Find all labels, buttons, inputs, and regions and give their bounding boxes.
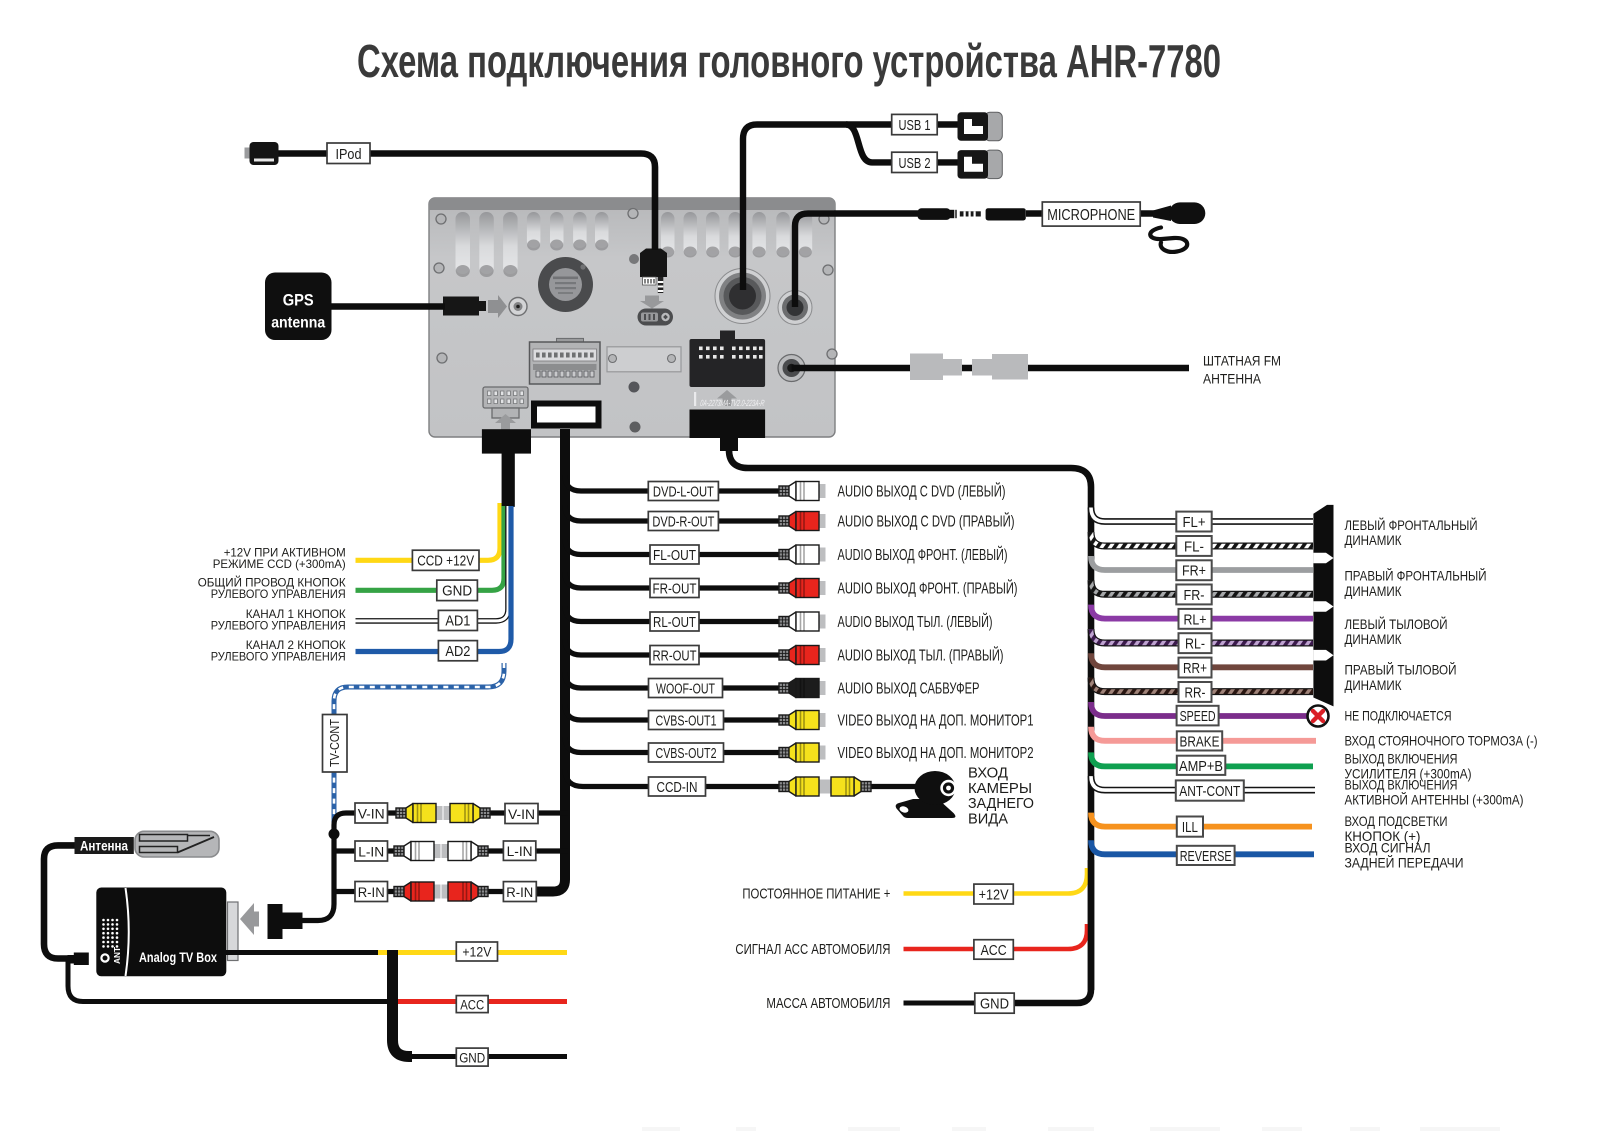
svg-text:ПОСТОЯННОЕ ПИТАНИЕ +: ПОСТОЯННОЕ ПИТАНИЕ + [742,886,890,903]
svg-text:RR-: RR- [1185,684,1206,701]
svg-text:ACC: ACC [460,997,484,1012]
svg-text:VIDEO ВЫХОД НА ДОП. МОНИТОР1: VIDEO ВЫХОД НА ДОП. МОНИТОР1 [838,713,1034,730]
svg-text:ВЫХОД ВКЛЮЧЕНИЯ: ВЫХОД ВКЛЮЧЕНИЯ [1345,750,1458,766]
svg-text:TV-CONT: TV-CONT [328,719,342,767]
svg-text:AUDIO ВЫХОД ФРОНТ. (ПРАВЫЙ): AUDIO ВЫХОД ФРОНТ. (ПРАВЫЙ) [838,580,1018,598]
svg-text:CVBS-OUT2: CVBS-OUT2 [656,746,717,762]
svg-text:ЛЕВЫЙ ФРОНТАЛЬНЫЙ: ЛЕВЫЙ ФРОНТАЛЬНЫЙ [1345,516,1478,533]
svg-text:DVD-R-OUT: DVD-R-OUT [652,515,714,531]
svg-text:ДИНАМИК: ДИНАМИК [1345,532,1403,548]
svg-text:ВИДА: ВИДА [968,810,1008,827]
svg-text:FR-OUT: FR-OUT [653,582,697,598]
svg-text:ДИНАМИК: ДИНАМИК [1345,631,1403,647]
svg-text:IPod: IPod [336,147,362,163]
svg-text:АКТИВНОЙ АНТЕННЫ (+300mA): АКТИВНОЙ АНТЕННЫ (+300mA) [1345,791,1524,808]
svg-text:DVD-L-OUT: DVD-L-OUT [653,485,714,501]
svg-text:ПРАВЫЙ ТЫЛОВОЙ: ПРАВЫЙ ТЫЛОВОЙ [1345,661,1457,678]
svg-text:СИГНАЛ АСС АВТОМОБИЛЯ: СИГНАЛ АСС АВТОМОБИЛЯ [735,941,890,958]
svg-text:L-IN: L-IN [358,843,384,859]
svg-text:V-IN: V-IN [358,805,385,821]
svg-text:ДИНАМИК: ДИНАМИК [1345,677,1403,693]
svg-text:+12V: +12V [462,945,491,960]
svg-text:RL+: RL+ [1184,611,1207,628]
svg-text:ВХОД СТОЯНОЧНОГО ТОРМОЗА (-): ВХОД СТОЯНОЧНОГО ТОРМОЗА (-) [1345,732,1538,748]
svg-text:WOOF-OUT: WOOF-OUT [656,682,715,698]
svg-text:RL-: RL- [1185,636,1205,653]
svg-text:FL-: FL- [1184,538,1204,555]
svg-text:ILL: ILL [1182,819,1198,836]
svg-text:ДИНАМИК: ДИНАМИК [1345,583,1403,599]
svg-text:BRAKE: BRAKE [1180,733,1220,750]
svg-text:ВХОД СИГНАЛ: ВХОД СИГНАЛ [1345,840,1431,856]
svg-text:ЛЕВЫЙ ТЫЛОВОЙ: ЛЕВЫЙ ТЫЛОВОЙ [1345,615,1448,632]
svg-text:FL-OUT: FL-OUT [653,548,696,564]
svg-text:AD1: AD1 [445,614,470,630]
svg-text:R-IN: R-IN [358,884,385,900]
svg-text:AUDIO ВЫХОД САБВУФЕР: AUDIO ВЫХОД САБВУФЕР [838,681,980,698]
svg-text:RR-OUT: RR-OUT [653,649,697,665]
svg-text:GND: GND [442,584,472,600]
svg-text:CCD +12V: CCD +12V [417,554,474,570]
svg-text:L-IN: L-IN [507,843,533,859]
svg-text:Analog TV Box: Analog TV Box [139,949,217,965]
svg-text:MICROPHONE: MICROPHONE [1047,207,1135,224]
svg-text:AD2: AD2 [445,644,470,660]
svg-text:АНТЕННА: АНТЕННА [1203,371,1262,387]
svg-text:ANT: ANT [113,947,122,964]
svg-text:RL-OUT: RL-OUT [653,615,696,631]
svg-text:ANT-CONT: ANT-CONT [1179,783,1240,800]
svg-text:SPEED: SPEED [1180,708,1216,725]
svg-text:РЕЖИМЕ CCD (+300mA): РЕЖИМЕ CCD (+300mA) [213,557,346,571]
svg-text:ШТАТНАЯ FM: ШТАТНАЯ FM [1203,353,1281,369]
svg-text:USB 1: USB 1 [899,118,931,134]
svg-text:GND: GND [980,997,1009,1013]
svg-text:FR-: FR- [1184,587,1205,604]
svg-text:RR+: RR+ [1183,660,1207,677]
svg-text:GPS: GPS [283,291,314,310]
svg-text:РУЛЕВОГО УПРАВЛЕНИЯ: РУЛЕВОГО УПРАВЛЕНИЯ [211,587,346,601]
svg-text:+12V: +12V [979,887,1009,903]
svg-text:AUDIO ВЫХОД С DVD (ЛЕВЫЙ): AUDIO ВЫХОД С DVD (ЛЕВЫЙ) [838,483,1006,501]
svg-text:ВЫХОД ВКЛЮЧЕНИЯ: ВЫХОД ВКЛЮЧЕНИЯ [1345,776,1458,792]
svg-text:REVERSE: REVERSE [1180,848,1232,865]
svg-text:R-IN: R-IN [506,884,533,900]
svg-text:FL+: FL+ [1183,514,1206,531]
svg-text:CCD-IN: CCD-IN [657,780,698,796]
svg-text:FR+: FR+ [1182,563,1206,580]
svg-text:VIDEO ВЫХОД НА ДОП. МОНИТОР2: VIDEO ВЫХОД НА ДОП. МОНИТОР2 [838,745,1034,762]
svg-text:ПРАВЫЙ ФРОНТАЛЬНЫЙ: ПРАВЫЙ ФРОНТАЛЬНЫЙ [1345,567,1487,584]
svg-text:GND: GND [459,1050,485,1065]
svg-text:ВХОД ПОДСВЕТКИ: ВХОД ПОДСВЕТКИ [1345,813,1448,829]
svg-text:CVBS-OUT1: CVBS-OUT1 [656,714,717,730]
svg-text:РУЛЕВОГО УПРАВЛЕНИЯ: РУЛЕВОГО УПРАВЛЕНИЯ [211,650,346,664]
svg-text:0A-2273MA-TV2.0-223A-R: 0A-2273MA-TV2.0-223A-R [700,398,766,408]
svg-text:V-IN: V-IN [508,806,535,822]
svg-text:ACC: ACC [981,943,1007,959]
svg-text:Схема подключения головного ус: Схема подключения головного устройства A… [357,35,1221,87]
svg-text:РУЛЕВОГО УПРАВЛЕНИЯ: РУЛЕВОГО УПРАВЛЕНИЯ [211,619,346,633]
svg-text:USB 2: USB 2 [899,156,931,172]
svg-text:AUDIO ВЫХОД ФРОНТ. (ЛЕВЫЙ): AUDIO ВЫХОД ФРОНТ. (ЛЕВЫЙ) [838,546,1008,564]
svg-text:AUDIO ВЫХОД ТЫЛ. (ПРАВЫЙ): AUDIO ВЫХОД ТЫЛ. (ПРАВЫЙ) [838,647,1004,665]
svg-text:AUDIO ВЫХОД С DVD (ПРАВЫЙ): AUDIO ВЫХОД С DVD (ПРАВЫЙ) [838,513,1015,531]
svg-text:ЗАДНЕЙ ПЕРЕДАЧИ: ЗАДНЕЙ ПЕРЕДАЧИ [1345,854,1464,871]
svg-text:Антенна: Антенна [80,839,128,854]
svg-text:МАССА АВТОМОБИЛЯ: МАССА АВТОМОБИЛЯ [766,995,890,1012]
svg-text:НЕ ПОДКЛЮЧАЕТСЯ: НЕ ПОДКЛЮЧАЕТСЯ [1345,707,1452,723]
svg-text:AMP+B: AMP+B [1179,758,1223,775]
svg-text:AUDIO ВЫХОД ТЫЛ. (ЛЕВЫЙ): AUDIO ВЫХОД ТЫЛ. (ЛЕВЫЙ) [838,613,993,631]
svg-text:antenna: antenna [271,315,325,332]
